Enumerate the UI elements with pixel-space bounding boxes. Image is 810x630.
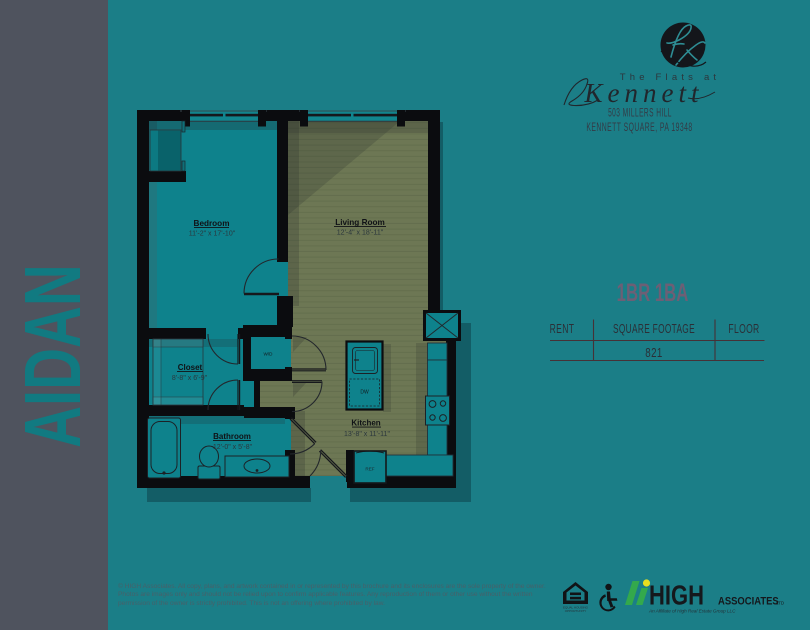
svg-text:SQUARE FOOTAGE: SQUARE FOOTAGE [613,322,695,336]
svg-text:13'-8" x 11'-11": 13'-8" x 11'-11" [344,431,390,438]
svg-text:Living Room: Living Room [335,218,385,227]
svg-text:HIGH: HIGH [649,580,704,611]
svg-text:FLOOR: FLOOR [728,322,759,336]
svg-text:LTD: LTD [776,601,785,606]
svg-text:An Affiliate of High Real Esta: An Affiliate of High Real Estate Group L… [648,609,736,614]
svg-text:11'-2" x 17'-10": 11'-2" x 17'-10" [189,231,236,238]
svg-text:Closet: Closet [178,363,203,372]
svg-text:12'-0" x 5'-8": 12'-0" x 5'-8" [213,444,253,451]
svg-text:8'-8" x 6'-9": 8'-8" x 6'-9" [172,375,208,382]
svg-text:RENT: RENT [550,322,575,336]
svg-text:W/D: W/D [264,352,274,357]
svg-text:Kitchen: Kitchen [351,419,380,428]
svg-text:821: 821 [645,347,662,361]
svg-text:12'-4" x 18'-11": 12'-4" x 18'-11" [337,230,384,237]
svg-text:ASSOCIATES: ASSOCIATES [718,596,779,608]
svg-text:OPPORTUNITY: OPPORTUNITY [565,609,587,613]
svg-text:KENNETT SQUARE, PA 19348: KENNETT SQUARE, PA 19348 [586,121,692,135]
svg-text:REF: REF [365,467,374,472]
svg-text:Kennett: Kennett [584,78,704,108]
svg-text:Bedroom: Bedroom [194,219,230,228]
svg-text:Bathroom: Bathroom [213,432,251,441]
svg-text:DW: DW [360,390,369,396]
svg-text:503 MILLERS HILL: 503 MILLERS HILL [608,107,672,121]
